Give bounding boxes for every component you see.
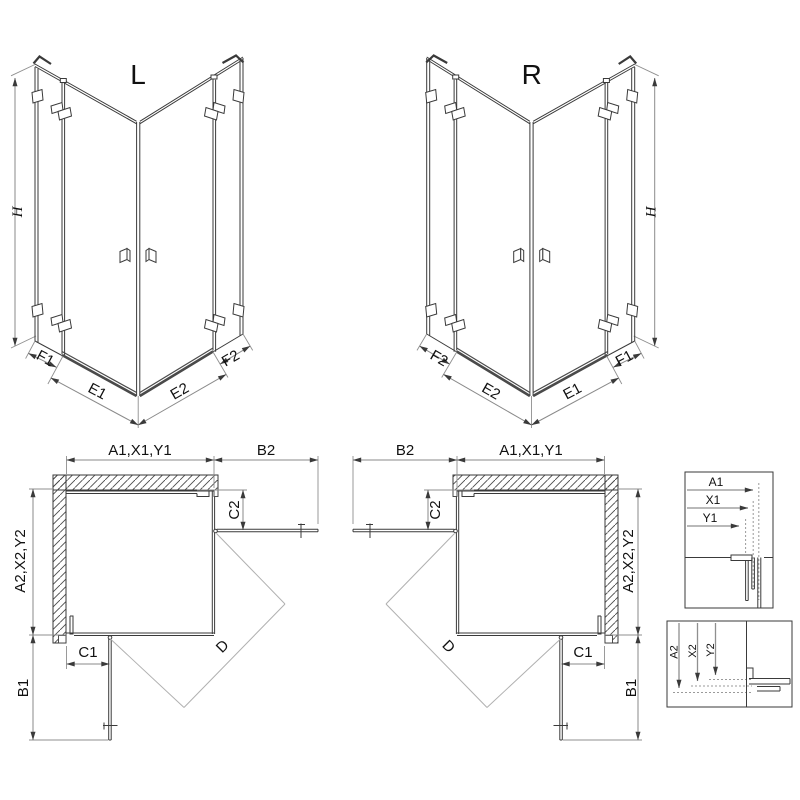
technical-drawing-canvas: L H F1 E1 E2 F2 R H F2 E2 E1 F1 (0, 0, 800, 800)
plan-wall-bands (53, 475, 618, 643)
detail-label-x1: X1 (706, 493, 721, 507)
dim-label-d-left: D (213, 637, 233, 657)
variant-label-right: R (522, 59, 542, 90)
dim-label-e2-left: E2 (168, 380, 192, 404)
dim-label-c2-left: C2 (226, 500, 243, 519)
dim-label-a1x1y1-right: A1,X1,Y1 (499, 442, 562, 459)
plan-view-right-geometry (353, 456, 642, 740)
dim-label-e1-right: E1 (560, 380, 584, 404)
dim-label-c2-right: C2 (427, 500, 444, 519)
plan-view-geometry (29, 456, 318, 740)
dim-label-f2-left: F2 (219, 347, 243, 370)
height-dimension-label-right: H (644, 205, 660, 218)
profile-detail-vertical: A2 X2 Y2 (667, 621, 792, 707)
dim-label-c1-left: C1 (78, 644, 97, 661)
detail-label-y1: Y1 (703, 511, 718, 525)
iso-view-geometry (11, 56, 253, 429)
dim-label-e2-right: E2 (479, 380, 503, 404)
dim-label-a1x1y1-left: A1,X1,Y1 (108, 442, 171, 459)
variant-label-left: L (130, 59, 146, 90)
dim-label-e1-left: E1 (85, 380, 109, 404)
detail-label-y2: Y2 (705, 643, 717, 656)
dim-label-b2-left: B2 (257, 442, 275, 459)
dim-label-b1-left: B1 (15, 679, 32, 697)
dim-label-f2-right: F2 (427, 347, 451, 370)
detail-label-x2: X2 (687, 644, 699, 657)
technical-drawing-page: L H F1 E1 E2 F2 R H F2 E2 E1 F1 (0, 0, 800, 800)
dim-label-d-right: D (439, 637, 459, 657)
dim-label-a2x2y2-right: A2,X2,Y2 (620, 529, 637, 592)
dim-label-b2-right: B2 (396, 442, 414, 459)
dim-label-a2x2y2-left: A2,X2,Y2 (12, 529, 29, 592)
height-dimension-label-left: H (10, 205, 26, 218)
iso-view-right-geometry (417, 56, 659, 429)
profile-detail-horizontal: A1 X1 Y1 (685, 472, 773, 608)
detail-label-a2: A2 (669, 645, 681, 658)
detail-label-a1: A1 (709, 475, 724, 489)
dim-label-c1-right: C1 (573, 644, 592, 661)
dim-label-b1-right: B1 (623, 679, 640, 697)
